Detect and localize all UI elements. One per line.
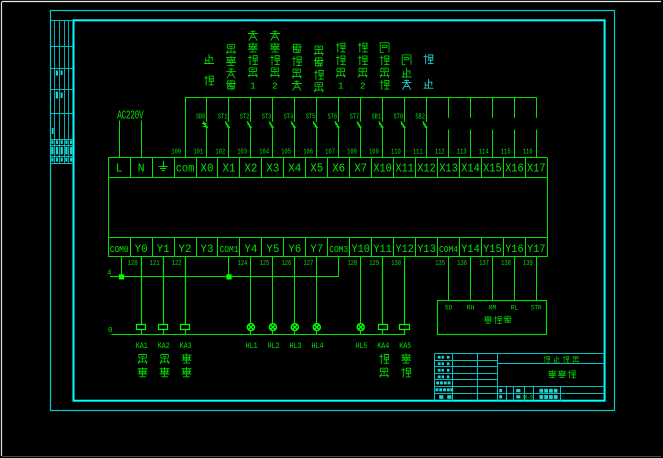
svg-text:HL3: HL3: [290, 341, 302, 351]
svg-text:102: 102: [215, 149, 225, 157]
svg-text:X5: X5: [310, 163, 323, 176]
svg-text:N: N: [138, 163, 145, 176]
svg-text:125: 125: [260, 260, 270, 268]
svg-text:126: 126: [282, 260, 292, 268]
svg-text:X2: X2: [244, 163, 257, 176]
svg-text:COM4: COM4: [439, 244, 458, 255]
svg-text:Y11: Y11: [373, 244, 392, 256]
svg-text:101: 101: [193, 149, 203, 157]
svg-text:KA3: KA3: [180, 341, 192, 351]
svg-text:X1: X1: [223, 163, 236, 176]
svg-text:COM1: COM1: [220, 244, 239, 255]
svg-text:X10: X10: [373, 163, 392, 176]
svg-text:Y2: Y2: [179, 244, 192, 256]
svg-text:X0: X0: [201, 163, 214, 176]
svg-text:com: com: [176, 163, 195, 176]
svg-text:AC220V: AC220V: [117, 109, 143, 122]
svg-text:139: 139: [523, 260, 533, 268]
svg-text:HL1: HL1: [246, 341, 258, 351]
svg-text:ST3: ST3: [262, 113, 272, 121]
svg-text:X13: X13: [439, 163, 458, 176]
svg-text:X3: X3: [266, 163, 279, 176]
svg-text:105: 105: [281, 149, 291, 157]
svg-text:112: 112: [435, 149, 445, 157]
svg-text:ST4: ST4: [284, 113, 294, 121]
svg-text:109: 109: [369, 149, 379, 157]
svg-text:Y14: Y14: [461, 244, 480, 256]
svg-text:Y6: Y6: [288, 244, 301, 256]
svg-text:138: 138: [501, 260, 511, 268]
svg-text:ST2: ST2: [240, 113, 250, 121]
svg-text:COM0: COM0: [110, 244, 129, 255]
svg-text:110: 110: [391, 149, 401, 157]
svg-text:Y13: Y13: [417, 244, 436, 256]
svg-text:KA4: KA4: [377, 341, 389, 351]
svg-text:X15: X15: [483, 163, 502, 176]
svg-text:Y0: Y0: [135, 244, 148, 256]
svg-text:Y10: Y10: [351, 244, 370, 256]
svg-text:129: 129: [369, 260, 379, 268]
svg-text:Y5: Y5: [266, 244, 279, 256]
svg-text:130: 130: [391, 260, 401, 268]
svg-text:137: 137: [479, 260, 489, 268]
svg-text:HL4: HL4: [312, 341, 324, 351]
svg-text:120: 120: [128, 260, 138, 268]
svg-text:Y15: Y15: [483, 244, 502, 256]
svg-text:Y4: Y4: [244, 244, 257, 256]
svg-text:X6: X6: [332, 163, 345, 176]
svg-text:KA2: KA2: [158, 341, 170, 351]
svg-text:116: 116: [523, 149, 533, 157]
svg-text:SB0: SB0: [196, 113, 206, 121]
svg-text:SB2: SB2: [415, 113, 425, 121]
svg-text:104: 104: [259, 149, 269, 157]
svg-text:ST6: ST6: [328, 113, 338, 121]
svg-text:SB1: SB1: [372, 113, 382, 121]
svg-text:122: 122: [172, 260, 182, 268]
svg-text:ST1: ST1: [218, 113, 228, 121]
svg-text:0: 0: [108, 327, 113, 335]
svg-text:ST5: ST5: [306, 113, 316, 121]
svg-text:KA1: KA1: [136, 341, 148, 351]
svg-text:Y16: Y16: [505, 244, 524, 256]
svg-text:X12: X12: [417, 163, 436, 176]
svg-text:SD: SD: [445, 305, 453, 312]
svg-text:108: 108: [347, 149, 357, 157]
svg-text:Y17: Y17: [527, 244, 546, 256]
svg-text:STR: STR: [531, 305, 542, 312]
svg-text:106: 106: [303, 149, 313, 157]
svg-text:ST8: ST8: [394, 113, 404, 121]
svg-text:100: 100: [171, 149, 181, 157]
svg-text:114: 114: [479, 149, 489, 157]
svg-text:103: 103: [237, 149, 247, 157]
svg-text:X7: X7: [354, 163, 367, 176]
svg-text:115: 115: [501, 149, 511, 157]
svg-text:1: 1: [250, 80, 256, 91]
svg-text:107: 107: [325, 149, 335, 157]
svg-text:Y1: Y1: [157, 244, 170, 256]
svg-text:Y3: Y3: [201, 244, 214, 256]
svg-text:RM: RM: [489, 305, 497, 312]
svg-text:X14: X14: [461, 163, 480, 176]
svg-text:KA5: KA5: [399, 341, 411, 351]
svg-text:111: 111: [413, 149, 423, 157]
svg-text:XB-0: XB-0: [522, 394, 533, 400]
svg-text:136: 136: [457, 260, 467, 268]
svg-text:Y7: Y7: [310, 244, 323, 256]
svg-text:X17: X17: [527, 163, 546, 176]
svg-text:HL2: HL2: [268, 341, 280, 351]
svg-text:124: 124: [238, 260, 248, 268]
svg-text:2: 2: [272, 80, 278, 91]
svg-text:Y12: Y12: [395, 244, 414, 256]
svg-text:113: 113: [457, 149, 467, 157]
svg-text:RH: RH: [467, 305, 475, 312]
svg-text:HL5: HL5: [355, 341, 367, 351]
svg-text:127: 127: [304, 260, 314, 268]
svg-text:ST7: ST7: [350, 113, 360, 121]
svg-text:128: 128: [347, 260, 357, 268]
svg-text:X16: X16: [505, 163, 524, 176]
svg-text:RL: RL: [511, 305, 519, 312]
svg-text:L: L: [116, 163, 123, 176]
svg-text:4: 4: [107, 270, 112, 278]
svg-text:2: 2: [360, 80, 366, 91]
svg-text:X11: X11: [395, 163, 414, 176]
svg-text:X4: X4: [288, 163, 301, 176]
svg-text:135: 135: [435, 260, 445, 268]
svg-text:COM3: COM3: [329, 244, 348, 255]
svg-text:1: 1: [338, 80, 344, 91]
svg-text:121: 121: [150, 260, 160, 268]
